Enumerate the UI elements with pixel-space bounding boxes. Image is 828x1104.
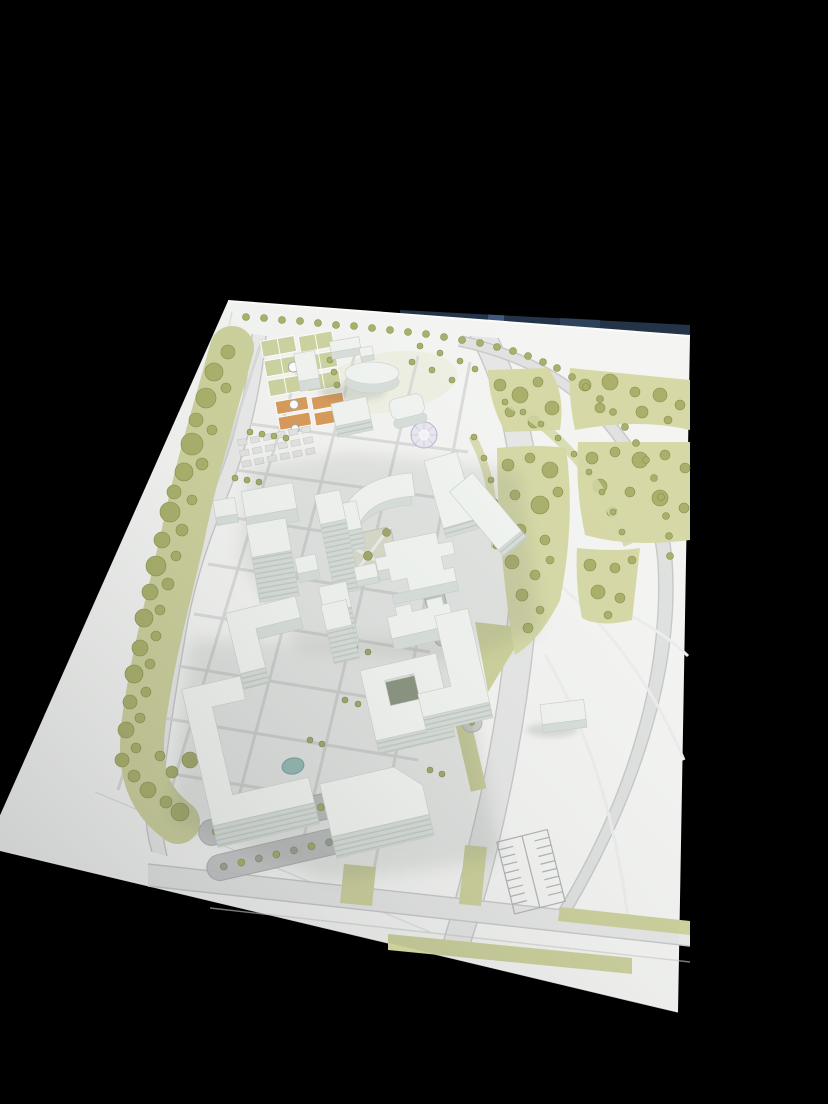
photo-architectural-model — [0, 0, 828, 1104]
model-photo-canvas — [0, 0, 828, 1104]
